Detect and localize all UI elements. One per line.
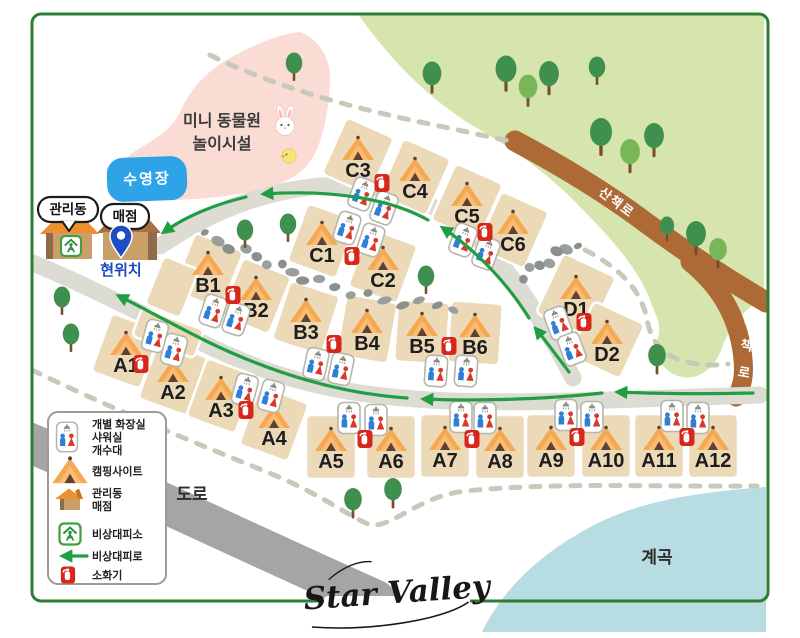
tree-icon [63, 324, 80, 353]
stone [277, 259, 287, 269]
pool: 수영장 [106, 156, 187, 203]
shelter-icon [60, 524, 81, 545]
trail-label-vertical-char: 책 [739, 337, 755, 354]
restroom-icon [424, 355, 448, 387]
store-bubble-label: 매점 [113, 208, 138, 224]
admin-building-side [46, 233, 53, 259]
campsite-label-B4: B4 [354, 333, 380, 355]
campsite-label-A5: A5 [318, 451, 344, 473]
legend-label: 개수대 [92, 443, 122, 457]
campsite-label-B3: B3 [293, 322, 319, 344]
tree-icon [648, 344, 666, 374]
legend-label: 소화기 [92, 568, 122, 582]
restroom-icon [454, 355, 478, 387]
campsite-label-A9: A9 [538, 450, 564, 472]
legend-label: 개별 화장실 [92, 417, 146, 431]
extinguisher-icon [465, 430, 480, 448]
valley-label: 계곡 [641, 548, 673, 567]
extinguisher-icon [226, 286, 241, 304]
restroom-icon [57, 422, 78, 451]
trail-label-vertical-char: 산 [742, 310, 758, 327]
zoo-label-line1: 미니 동물원 [183, 112, 261, 130]
campsite-label-A2: A2 [160, 382, 186, 404]
campsite-label-C6: C6 [500, 234, 526, 256]
location-pin-dot [117, 231, 125, 239]
campsite-label-A11: A11 [641, 450, 677, 472]
evac-arrow [618, 392, 753, 394]
restroom-icon [327, 352, 355, 387]
extinguisher-icon [478, 223, 493, 241]
tree-icon [237, 220, 254, 249]
extinguisher-icon [358, 430, 373, 448]
extinguisher-icon [61, 566, 75, 583]
admin-bubble-label: 관리동 [49, 201, 86, 217]
campground-map-page: A1A2A3A4A5A6A7A8A9A10A11A12B1B2B3B4B5B6C… [0, 0, 800, 638]
zoo-label-line2: 놀이시설 [193, 135, 252, 153]
campsite-label-A8: A8 [487, 451, 513, 473]
stone [329, 283, 341, 292]
road-label: 도로 [176, 485, 208, 504]
pool-label: 수영장 [123, 169, 171, 189]
campsite-label-A10: A10 [588, 450, 625, 472]
restroom-icon [338, 403, 360, 434]
campsite-label-A4: A4 [261, 428, 287, 450]
stone [542, 257, 556, 269]
campsite-label-C2: C2 [370, 270, 396, 292]
campsite-label-D2: D2 [594, 344, 620, 366]
campsite-label-A7: A7 [432, 450, 458, 472]
tree-icon [384, 478, 402, 508]
tree-icon [418, 266, 435, 295]
current-location-label: 현위치 [100, 262, 141, 279]
chick-icon [281, 149, 296, 163]
restroom-icon [450, 402, 472, 433]
extinguisher-icon [345, 247, 360, 265]
trail-label-vertical-char: 로 [737, 364, 753, 381]
campsite-label-A6: A6 [378, 451, 404, 473]
extinguisher-icon [327, 335, 342, 353]
restroom-icon [474, 403, 496, 434]
restroom-icon [555, 400, 577, 431]
campsite-label-C4: C4 [402, 181, 428, 203]
campground-map: A1A2A3A4A5A6A7A8A9A10A11A12B1B2B3B4B5B6C… [0, 0, 800, 638]
extinguisher-icon [680, 428, 695, 446]
restroom-icon [661, 401, 683, 432]
extinguisher-icon [239, 401, 254, 419]
campsite-label-C1: C1 [309, 245, 335, 267]
legend-label: 관리동 [92, 486, 122, 500]
valley-water-area [482, 487, 766, 632]
campsite-label-A3: A3 [208, 400, 234, 422]
legend-label: 캠핑사이트 [92, 464, 143, 478]
extinguisher-icon [577, 313, 592, 331]
campsite-label-B1: B1 [195, 275, 221, 297]
store-building-side [148, 232, 157, 260]
extinguisher-icon [375, 174, 390, 192]
extinguisher-icon [442, 337, 457, 355]
legend-label: 샤워실 [92, 430, 122, 444]
campsite-label-A12: A12 [695, 450, 732, 472]
restroom-icon [581, 402, 603, 433]
tree-icon [54, 287, 71, 316]
tree-icon [280, 214, 297, 243]
legend-box: 개별 화장실 샤워실 개수대 캠핑사이트 관리동 매점 비상대피소 비상대피로 [48, 412, 166, 584]
legend-label: 비상대피소 [92, 527, 143, 541]
stone [313, 275, 325, 284]
legend-label: 매점 [92, 499, 112, 513]
shelter-icon [61, 236, 81, 256]
extinguisher-icon [134, 355, 149, 373]
legend-label: 비상대피로 [92, 549, 143, 563]
stone [573, 241, 583, 250]
extinguisher-icon [570, 428, 585, 446]
